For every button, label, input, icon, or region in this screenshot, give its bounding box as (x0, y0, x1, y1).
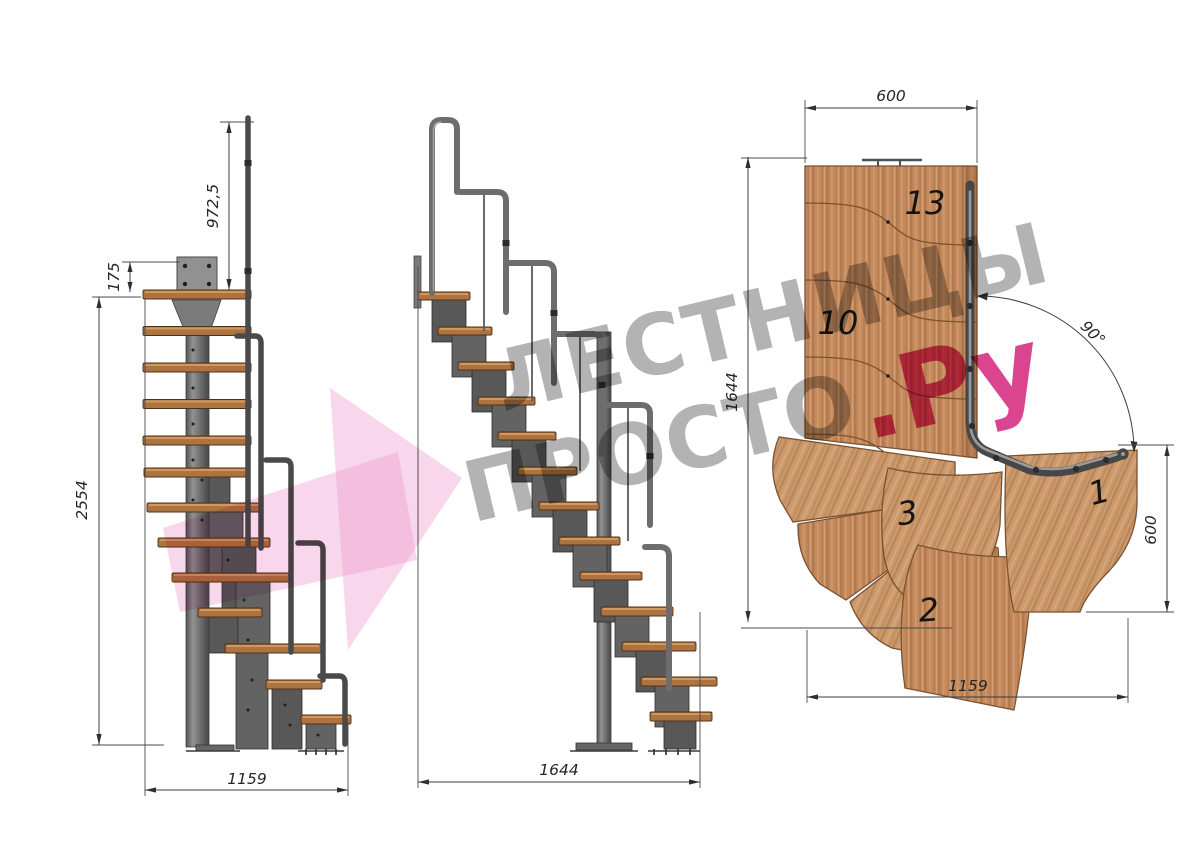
staircase-technical-drawing: 972,5 175 2554 1159 (0, 0, 1200, 849)
logo-arrow-watermark (0, 0, 1200, 849)
logo-arrow-head (330, 388, 462, 650)
